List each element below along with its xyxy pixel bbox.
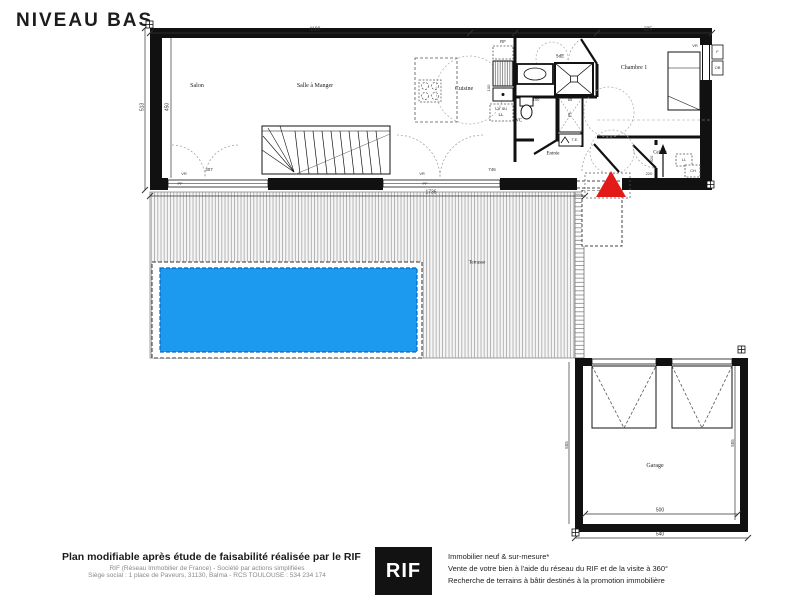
label-fridge: RF bbox=[500, 40, 506, 45]
room-label-entry: Entrée bbox=[546, 152, 559, 157]
footer-tagline-block: Immobilier neuf & sur-mesure* Vente de v… bbox=[448, 551, 668, 587]
label-window-ob: OB bbox=[715, 66, 721, 70]
label-electrical-panel: T.E. bbox=[572, 138, 579, 142]
tall-cabinet bbox=[493, 61, 513, 86]
label-sill-1: PF bbox=[177, 182, 182, 186]
rif-logo: RIF bbox=[375, 547, 432, 595]
room-label-shower-room: SdE bbox=[556, 55, 564, 60]
dim-garage-outer: 540 bbox=[656, 533, 664, 538]
floor-plan-drawing bbox=[0, 0, 800, 600]
label-dishwasher: LV ou bbox=[495, 107, 506, 112]
staircase bbox=[262, 126, 390, 174]
rif-logo-text: RIF bbox=[386, 560, 421, 583]
label-shutter-2: VR bbox=[419, 172, 425, 176]
dim-pantry-depth: 320 bbox=[650, 156, 654, 163]
footer-tagline-3: Recherche de terrains à bâtir destinés à… bbox=[448, 575, 668, 587]
swimming-pool bbox=[160, 268, 417, 352]
room-label-bedroom: Chambre 1 bbox=[621, 65, 648, 71]
electrical-panel-box bbox=[559, 134, 582, 146]
room-label-terrace: Terrasse bbox=[469, 261, 486, 266]
room-label-salon: Salon bbox=[190, 83, 204, 89]
dim-left-inner: 450 bbox=[166, 103, 171, 111]
room-label-pantry: Cellier bbox=[653, 151, 667, 156]
dim-bedroom-width: 325 bbox=[644, 28, 652, 33]
label-boiler: CH bbox=[690, 169, 696, 173]
dim-garage-side-left: 555 bbox=[565, 441, 570, 449]
label-window-f: F bbox=[716, 50, 718, 54]
floor-plan-page: NIVEAU BAS bbox=[0, 0, 800, 600]
label-washer: LL bbox=[498, 113, 503, 118]
room-label-wc: WC bbox=[514, 119, 522, 124]
dim-bay-door: 746 bbox=[488, 168, 496, 173]
label-closet: PL bbox=[568, 111, 573, 117]
dim-pantry-width: 220 bbox=[646, 172, 653, 176]
vanity bbox=[517, 64, 553, 84]
dim-building-total: 1736 bbox=[425, 191, 436, 196]
footer-legal-line-1: RIF (Réseau Immobilier de France) - Soci… bbox=[62, 565, 352, 572]
label-pantry-washer: LL bbox=[682, 158, 686, 162]
garage-structure bbox=[575, 358, 748, 532]
dim-salon-door: 307 bbox=[205, 168, 213, 173]
footer: Plan modifiable après étude de faisabili… bbox=[0, 543, 800, 600]
entry-porch bbox=[582, 190, 622, 246]
label-shutter-3: VR bbox=[692, 44, 698, 48]
footer-legal-block: Plan modifiable après étude de faisabili… bbox=[62, 551, 352, 579]
dim-wc-width: 100 bbox=[533, 98, 540, 102]
terrace-area bbox=[150, 192, 584, 358]
dim-top-main: 1100 bbox=[310, 28, 321, 33]
label-shutter-1: VR bbox=[181, 172, 187, 176]
label-sill-2: PF bbox=[422, 182, 427, 186]
room-label-kitchen: Cuisine bbox=[455, 86, 473, 92]
bed bbox=[668, 52, 700, 110]
dim-garage-inner: 500 bbox=[656, 509, 664, 514]
house-walls bbox=[150, 28, 712, 190]
footer-tagline-2: Vente de votre bien à l'aide du réseau d… bbox=[448, 563, 668, 575]
dim-kitchen-depth: 100 bbox=[487, 85, 491, 92]
room-label-garage: Garage bbox=[646, 463, 663, 469]
dim-garage-side-right: 555 bbox=[731, 439, 736, 447]
footer-legal-line-2: Siège social : 1 place de Paveurs, 31130… bbox=[62, 572, 352, 579]
room-label-dining: Salle à Manger bbox=[297, 83, 333, 89]
footer-tagline-1: Immobilier neuf & sur-mesure* bbox=[448, 551, 668, 563]
footer-headline: Plan modifiable après étude de faisabili… bbox=[62, 551, 352, 563]
dim-closet-width: 65 bbox=[568, 98, 572, 102]
dim-left-outer: 513 bbox=[141, 103, 146, 111]
